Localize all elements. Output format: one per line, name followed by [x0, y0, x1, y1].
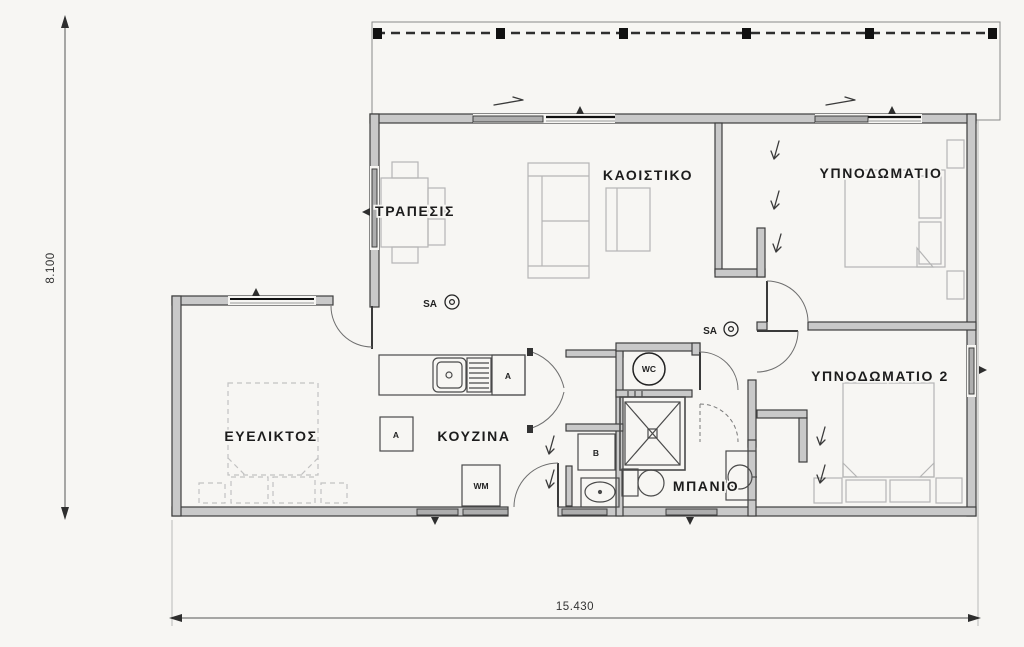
svg-text:SA: SA — [703, 326, 717, 337]
washing-machine: WM — [462, 465, 500, 506]
room-label-bedroom2: ΥΠΝΟΔΩΜΑΤΙΟ 2 — [811, 368, 949, 384]
slide-direction-arrow-icon — [494, 97, 523, 105]
room-label-bedroom1: ΥΠΝΟΔΩΜΑΤΙΟ — [820, 165, 943, 181]
opening-tick-icon — [362, 208, 370, 216]
opening-tick-icon — [431, 517, 439, 525]
appliance-a-2: A — [380, 417, 413, 451]
appliance-a-1: A — [492, 355, 525, 395]
slope-arrow-icon — [817, 465, 825, 483]
room-label-dining: ΤΡΑΠΕΣΙΣ — [375, 203, 455, 219]
opening-tick-icon — [979, 366, 987, 374]
kitchen-sink — [433, 358, 466, 392]
opening-tick-icon — [252, 288, 260, 296]
room-label-kitchen: ΚΟΥΖΙΝΑ — [437, 428, 510, 444]
room-kitchen: A A WM ΚΟΥΖΙΝΑ — [379, 355, 525, 506]
room-label-living: ΚΑΟΙΣΤΙΚΟ — [603, 167, 693, 183]
room-living: ΚΑΟΙΣΤΙΚΟ SA — [423, 163, 693, 310]
window-bedroom1 — [815, 116, 868, 122]
room-label-flexible: ΕΥΕΛΙΚΤΟΣ — [224, 428, 317, 444]
door-flexible — [331, 306, 372, 349]
room-flexible: ΕΥΕΛΙΚΤΟΣ — [199, 383, 347, 503]
window-kitchen — [417, 509, 458, 515]
bed-bedroom2 — [814, 383, 962, 503]
boiler: B — [578, 434, 615, 470]
door-bedroom2 — [757, 331, 798, 372]
room-label-bathroom: ΜΠΑΝΙΟ — [673, 478, 739, 494]
slope-arrow-icon — [546, 470, 554, 488]
window-bath-2 — [666, 509, 717, 515]
smoke-alarm-icon: SA — [423, 295, 459, 310]
opening-tick-icon — [686, 517, 694, 525]
sofa — [528, 163, 589, 278]
armchair — [606, 188, 650, 251]
shower — [620, 391, 685, 470]
svg-text:A: A — [505, 371, 511, 381]
svg-text:WM: WM — [473, 481, 488, 491]
slide-direction-arrow-icon — [826, 97, 855, 105]
svg-text:B: B — [593, 448, 599, 458]
svg-text:WC: WC — [642, 364, 656, 374]
svg-text:SA: SA — [423, 299, 437, 310]
smoke-alarm-icon: SA — [703, 322, 738, 337]
floor-plan-page: ΤΡΑΠΕΣΙΣ ΚΑΟΙΣΤΙΚΟ SA — [0, 0, 1024, 647]
closet-bifold-doors — [527, 348, 564, 433]
dimension-height: 8.100 — [45, 15, 69, 520]
door-bathroom — [700, 352, 738, 442]
floor-plan-svg: ΤΡΑΠΕΣΙΣ ΚΑΟΙΣΤΙΚΟ SA — [0, 0, 1024, 647]
wc-fan-icon: WC — [633, 353, 665, 385]
window-bath-1 — [562, 509, 607, 515]
opening-tick-icon — [576, 106, 584, 114]
slope-arrow-icon — [773, 234, 781, 252]
room-bedroom1: ΥΠΝΟΔΩΜΑΤΙΟ — [771, 140, 964, 299]
slope-arrow-icon — [546, 436, 554, 454]
dimension-width-label: 15.430 — [556, 601, 594, 613]
washbasin-oval — [581, 478, 619, 507]
svg-text:A: A — [393, 430, 399, 440]
room-bedroom2: ΥΠΝΟΔΩΜΑΤΙΟ 2 SA — [703, 322, 962, 503]
toilet — [622, 469, 664, 496]
windows — [228, 97, 987, 525]
slope-arrow-icon — [771, 141, 779, 159]
slope-arrow-icon — [771, 191, 779, 209]
slope-arrow-icon — [817, 427, 825, 445]
window-living — [473, 116, 543, 122]
window-bedroom2 — [969, 348, 974, 394]
door-bedroom1 — [767, 281, 808, 322]
dimension-height-label: 8.100 — [45, 252, 57, 283]
bed-bedroom1 — [845, 140, 964, 299]
opening-tick-icon — [888, 106, 896, 114]
room-dining: ΤΡΑΠΕΣΙΣ — [375, 162, 455, 263]
deck-outline — [372, 22, 1000, 120]
kitchen-drainer — [467, 358, 491, 392]
window-entry-side — [463, 509, 508, 515]
